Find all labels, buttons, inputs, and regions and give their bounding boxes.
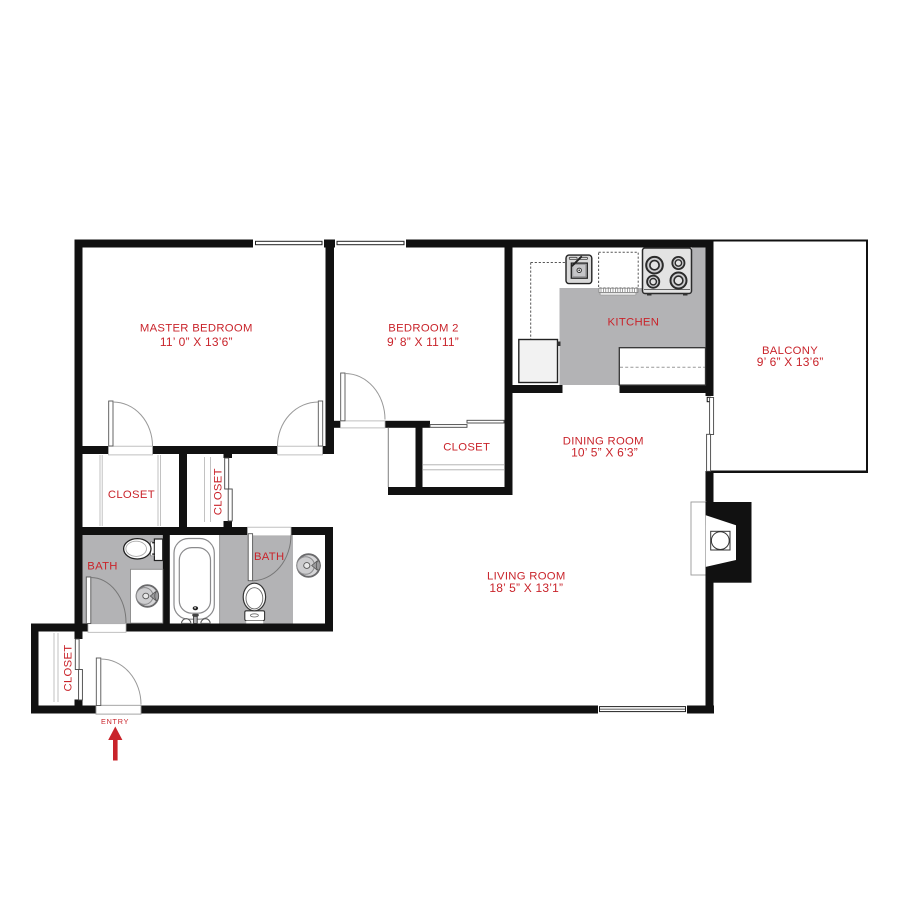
svg-text:CLOSET: CLOSET xyxy=(108,489,155,501)
svg-text:11’ 0” X 13’6”: 11’ 0” X 13’6” xyxy=(160,335,233,349)
svg-text:CLOSET: CLOSET xyxy=(213,468,225,515)
svg-text:CLOSET: CLOSET xyxy=(443,441,490,453)
svg-text:ENTRY: ENTRY xyxy=(101,717,129,726)
svg-text:9’ 8” X 11’11”: 9’ 8” X 11’11” xyxy=(387,335,459,349)
svg-text:BEDROOM 2: BEDROOM 2 xyxy=(388,322,459,334)
svg-text:18’ 5” X 13’1”: 18’ 5” X 13’1” xyxy=(489,581,563,595)
svg-text:10’ 5” X 6’3”: 10’ 5” X 6’3” xyxy=(571,445,638,459)
svg-text:MASTER BEDROOM: MASTER BEDROOM xyxy=(140,322,253,334)
svg-text:CLOSET: CLOSET xyxy=(62,645,74,692)
svg-text:KITCHEN: KITCHEN xyxy=(608,316,660,328)
svg-text:BATH: BATH xyxy=(254,551,285,563)
svg-text:BATH: BATH xyxy=(87,560,118,572)
svg-text:9’ 6” X 13’6”: 9’ 6” X 13’6” xyxy=(757,355,824,369)
